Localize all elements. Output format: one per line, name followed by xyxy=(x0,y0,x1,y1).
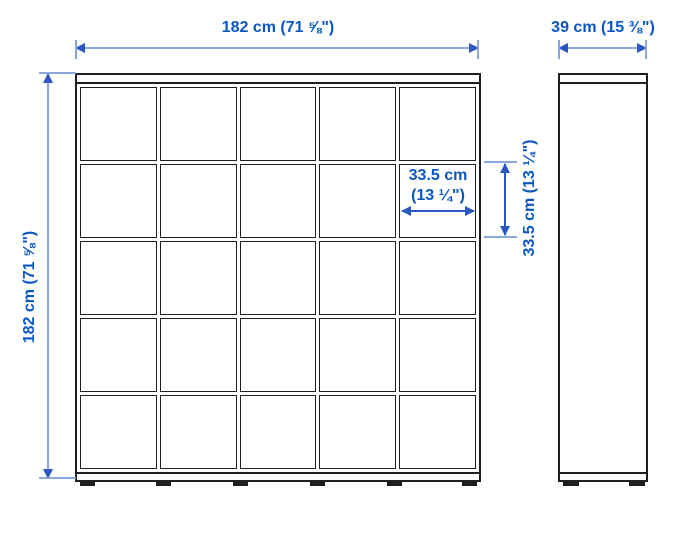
cube-cell xyxy=(399,318,476,392)
cube-cell xyxy=(240,395,317,469)
cube-width-dimension-label-line2: (13 ¼") xyxy=(399,186,477,206)
front-top-panel xyxy=(77,75,479,84)
side-depth-dimension-line xyxy=(559,47,646,49)
side-foot xyxy=(563,481,579,486)
dimension-tick xyxy=(75,40,77,59)
cube-cell xyxy=(80,241,157,315)
cube-height-dimension-label: 33.5 cm (13 ¼") xyxy=(521,140,539,257)
side-top-panel xyxy=(560,75,646,84)
cube-cell xyxy=(160,241,237,315)
dimension-tick xyxy=(39,72,76,74)
cube-cell xyxy=(240,164,317,238)
arrow-left-icon xyxy=(401,206,411,216)
side-view-shelf-unit xyxy=(558,73,648,482)
dimension-tick xyxy=(484,236,517,238)
cube-width-dimension-line xyxy=(402,210,474,212)
dimension-tick xyxy=(39,477,76,479)
cube-cell xyxy=(319,164,396,238)
front-bottom-panel xyxy=(77,472,479,480)
cube-width-dimension-label: 33.5 cm (13 ¼") xyxy=(399,166,477,206)
front-foot xyxy=(156,481,171,486)
front-foot xyxy=(310,481,325,486)
front-width-dimension-line xyxy=(76,47,478,49)
cube-cell xyxy=(240,87,317,161)
cube-cell xyxy=(240,318,317,392)
dimension-tick xyxy=(645,40,647,59)
arrow-up-icon xyxy=(500,163,510,173)
side-foot xyxy=(629,481,645,486)
cube-cell xyxy=(160,87,237,161)
cube-cell xyxy=(80,318,157,392)
arrow-right-icon xyxy=(465,206,475,216)
cube-cell xyxy=(319,318,396,392)
arrow-up-icon xyxy=(43,73,53,83)
dimension-tick xyxy=(477,40,479,59)
cube-width-dimension-label-line1: 33.5 cm xyxy=(399,166,477,186)
side-bottom-panel xyxy=(560,472,646,480)
front-height-dimension-line xyxy=(47,74,49,478)
front-grid xyxy=(77,84,479,472)
cube-height-dimension-line xyxy=(504,164,506,235)
cube-cell xyxy=(399,395,476,469)
cube-cell xyxy=(399,87,476,161)
front-foot xyxy=(233,481,248,486)
cube-cell xyxy=(399,241,476,315)
arrow-down-icon xyxy=(500,226,510,236)
front-view-shelf-unit xyxy=(75,73,481,482)
front-foot xyxy=(80,481,95,486)
cube-cell xyxy=(80,87,157,161)
side-depth-dimension-label: 39 cm (15 ⅜") xyxy=(539,19,667,37)
cube-cell xyxy=(160,395,237,469)
front-height-dimension-label: 182 cm (71 ⅝") xyxy=(21,231,39,344)
cube-cell xyxy=(319,87,396,161)
cube-cell xyxy=(240,241,317,315)
cube-cell xyxy=(160,164,237,238)
cube-cell xyxy=(160,318,237,392)
front-width-dimension-label: 182 cm (71 ⅝") xyxy=(75,19,481,37)
front-foot xyxy=(462,481,477,486)
product-dimension-diagram: 182 cm (71 ⅝") 182 cm (71 ⅝") 33.5 cm (1… xyxy=(0,0,692,554)
cube-cell xyxy=(319,241,396,315)
cube-cell xyxy=(319,395,396,469)
front-foot xyxy=(387,481,402,486)
side-panel-body xyxy=(560,84,646,472)
cube-cell xyxy=(80,395,157,469)
cube-cell xyxy=(80,164,157,238)
dimension-tick xyxy=(558,40,560,59)
